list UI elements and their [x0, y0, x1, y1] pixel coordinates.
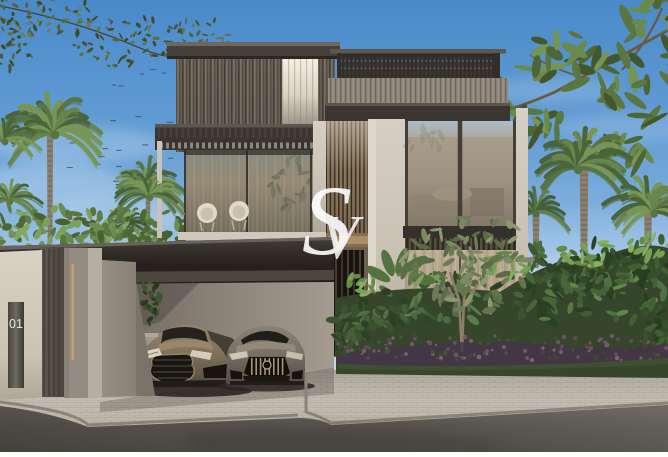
svg-text:V: V	[320, 204, 364, 272]
svg-text:01: 01	[9, 317, 23, 331]
